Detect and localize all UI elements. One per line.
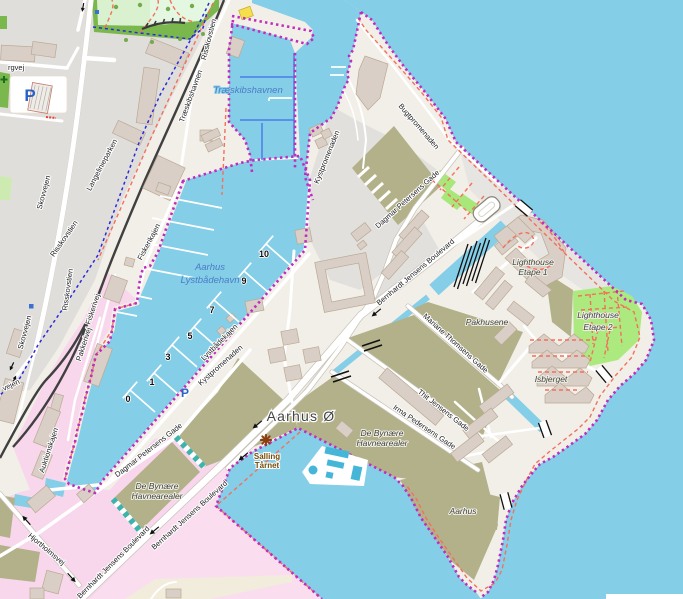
svg-text:Aarhus: Aarhus [194,262,225,273]
svg-text:Lighthouse: Lighthouse [577,310,619,320]
svg-text:Tårnet: Tårnet [255,461,280,470]
svg-text:Etape 1: Etape 1 [518,267,548,277]
svg-text:Lighthouse: Lighthouse [512,257,554,267]
svg-text:Lystbådehavn: Lystbådehavn [181,275,240,286]
svg-text:7: 7 [209,305,214,315]
svg-text:9: 9 [241,276,246,286]
svg-text:De Bynære: De Bynære [361,428,404,438]
svg-text:Havnearealer: Havnearealer [131,491,183,501]
svg-text:De Bynære: De Bynære [136,481,179,491]
svg-text:Træskibshavnen: Træskibshavnen [213,85,283,96]
svg-text:P: P [181,386,189,400]
svg-text:0: 0 [125,394,130,404]
svg-text:Aarhus: Aarhus [449,506,478,516]
svg-text:1: 1 [149,377,154,387]
svg-text:Pakhusene: Pakhusene [466,317,509,327]
svg-text:rgvej: rgvej [8,63,25,72]
svg-text:Salling: Salling [254,452,280,461]
svg-text:3: 3 [165,352,170,362]
svg-text:5: 5 [187,331,192,341]
svg-text:Isbjerget: Isbjerget [535,374,568,384]
svg-text:Etape 2: Etape 2 [583,322,613,332]
svg-text:P: P [24,86,35,105]
svg-text:Havnearealer: Havnearealer [356,438,408,448]
svg-text:10: 10 [259,249,269,259]
svg-text:Aarhus Ø: Aarhus Ø [267,408,336,424]
